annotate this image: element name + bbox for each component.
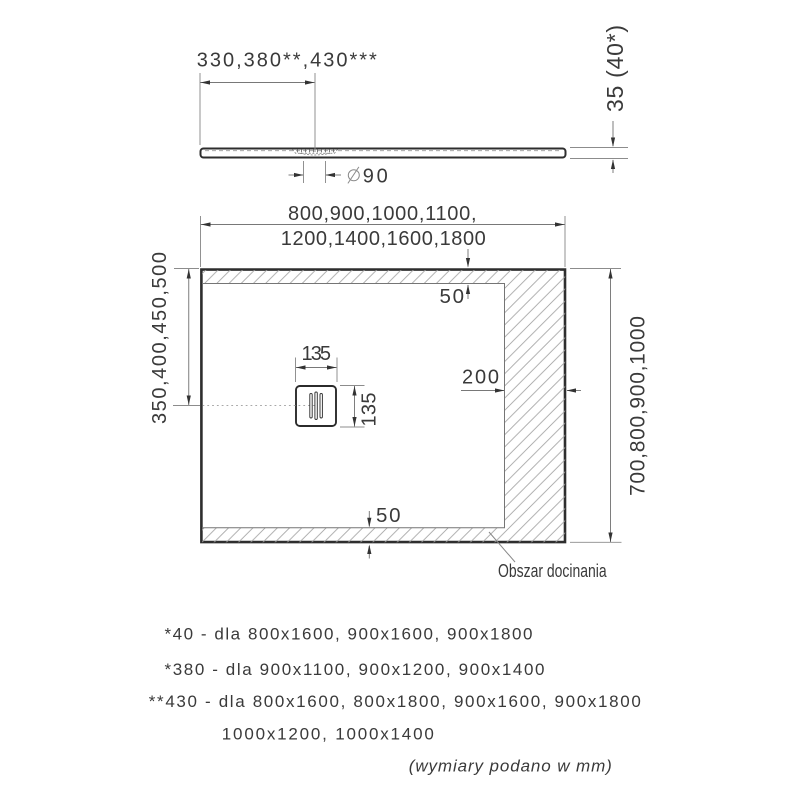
svg-text:1200,1400,1600,1800: 1200,1400,1600,1800 (281, 228, 486, 250)
svg-text:135: 135 (302, 343, 332, 365)
svg-text:135: 135 (359, 393, 381, 427)
svg-text:Obszar docinania: Obszar docinania (498, 561, 607, 581)
svg-text:50: 50 (376, 504, 401, 527)
svg-text:330,380**,430***: 330,380**,430*** (197, 50, 377, 72)
svg-text:*40 - dla 800x1600, 900x1600,: *40 - dla 800x1600, 900x1600, 900x1800 (165, 625, 533, 644)
svg-text:1000x1200, 1000x1400: 1000x1200, 1000x1400 (222, 725, 434, 744)
svg-text:800,900,1000,1100,: 800,900,1000,1100, (288, 203, 477, 225)
svg-text:35 (40*): 35 (40*) (602, 25, 628, 112)
svg-text:350,400,450,500: 350,400,450,500 (149, 252, 171, 424)
svg-text:**430 - dla 800x1600, 800x1800: **430 - dla 800x1600, 800x1800, 900x1600… (149, 692, 641, 711)
svg-text:*380 - dla 900x1100, 900x1200,: *380 - dla 900x1100, 900x1200, 900x1400 (165, 660, 545, 679)
svg-text:700,800,900,1000: 700,800,900,1000 (627, 316, 650, 496)
svg-text:50: 50 (440, 285, 465, 308)
svg-text:200: 200 (462, 367, 499, 389)
svg-text:(wymiary podano w mm): (wymiary podano w mm) (409, 757, 612, 776)
